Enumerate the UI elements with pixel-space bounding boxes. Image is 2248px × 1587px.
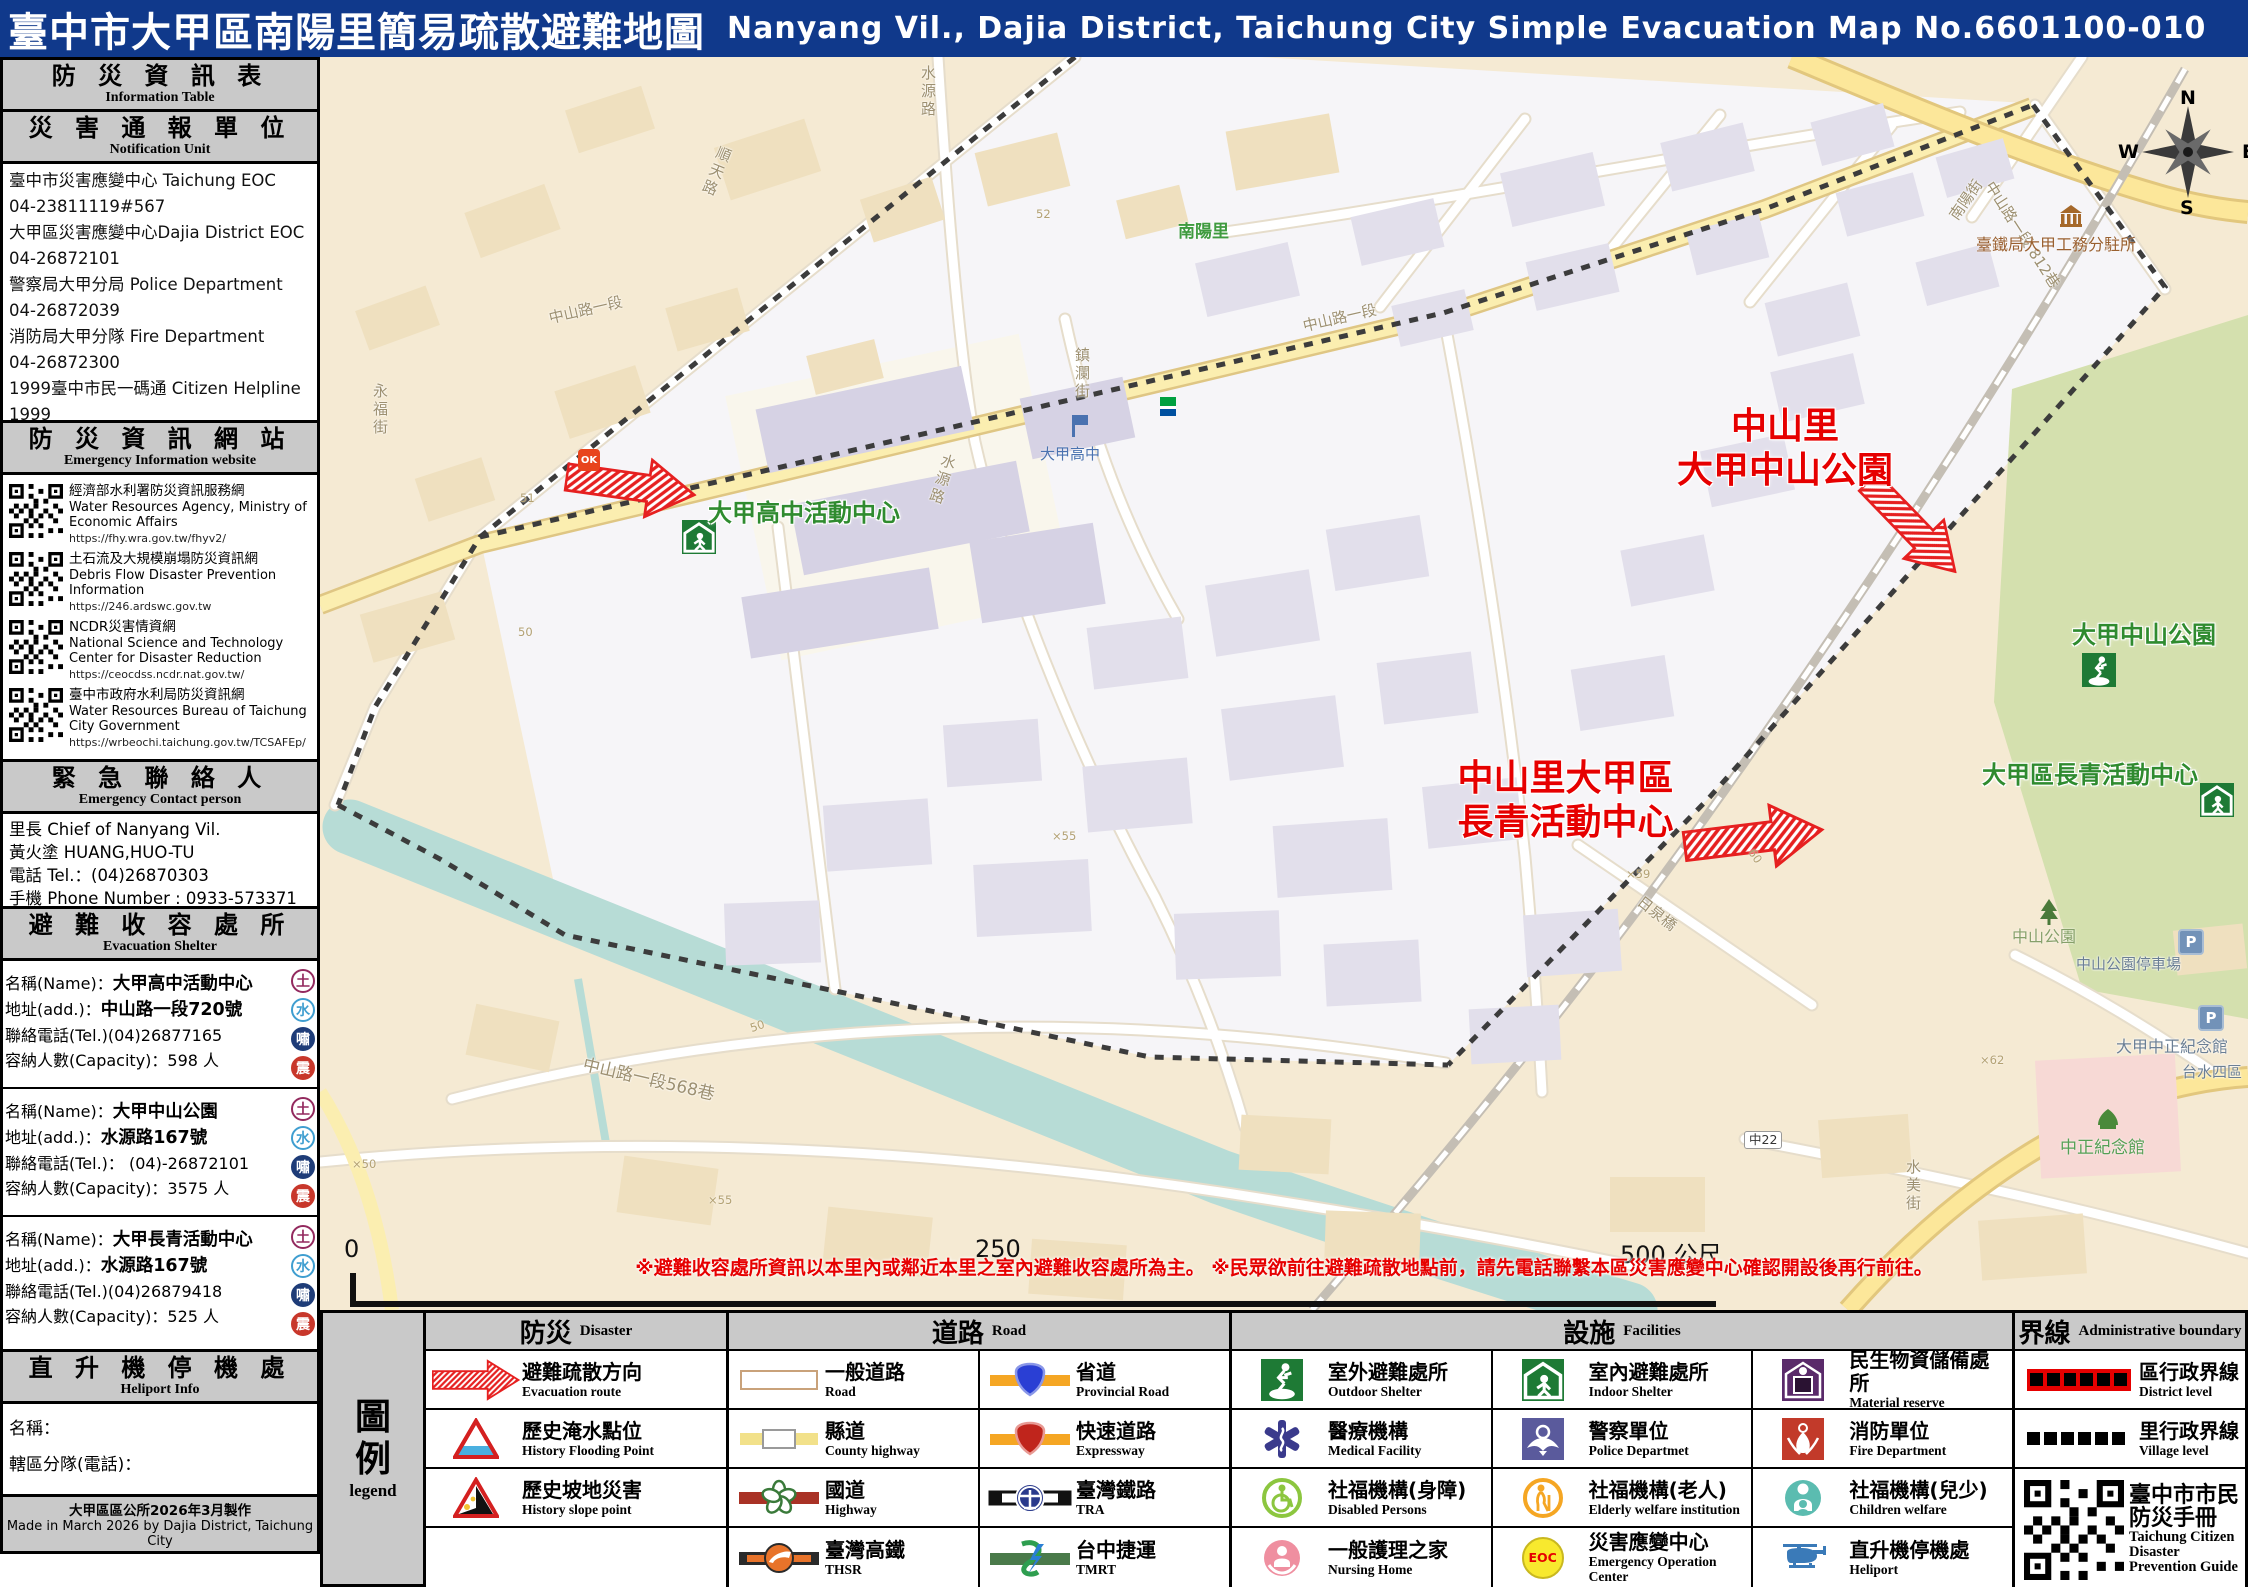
website-item: 經濟部水利署防災資訊服務網 Water Resources Agency, Mi… bbox=[9, 484, 311, 546]
material-reserve-icon bbox=[1757, 1359, 1849, 1401]
village-boundary-symbol bbox=[2019, 1431, 2139, 1447]
notify-phone: 04-26872300 bbox=[9, 350, 311, 376]
road-label: 鎮瀾街 bbox=[1072, 347, 1093, 401]
legend-item: 國道Highway bbox=[729, 1469, 978, 1528]
familymart-icon bbox=[1160, 397, 1176, 416]
compass-e: E bbox=[2242, 141, 2248, 163]
school-label: 大甲高中 bbox=[1040, 443, 1100, 464]
village-name-label: 南陽里 bbox=[1178, 217, 1229, 242]
legend-header-zh: 道路 bbox=[932, 1313, 984, 1350]
fire-department-icon bbox=[1757, 1418, 1849, 1460]
qr-code-icon bbox=[9, 552, 63, 606]
national-highway-symbol bbox=[733, 1476, 825, 1520]
heliport-icon bbox=[1757, 1540, 1849, 1576]
tra-symbol bbox=[984, 1476, 1076, 1520]
legend-header-en: Facilities bbox=[1623, 1323, 1680, 1340]
notify-name: 消防局大甲分隊 Fire Department bbox=[9, 324, 311, 350]
shelter-addr: 地址(add.)：水源路167號 bbox=[5, 1125, 313, 1151]
website-zh: 臺中市政府水利局防災資訊網 bbox=[69, 687, 245, 703]
children-welfare-icon bbox=[1757, 1477, 1849, 1519]
poi-label: 大甲中正紀念館 bbox=[2116, 1033, 2228, 1057]
road-label: 水美街 bbox=[1903, 1159, 1924, 1213]
expressway-symbol bbox=[984, 1417, 1076, 1461]
landslide-badge-icon: 土 bbox=[291, 969, 315, 993]
notify-phone: 04-23811119#567 bbox=[9, 194, 311, 220]
park-tree-icon bbox=[2040, 899, 2058, 925]
government-building-icon bbox=[2060, 205, 2082, 227]
legend-item: 省道Provincial Road bbox=[980, 1351, 1229, 1410]
website-en: Water Resources Agency, Ministry of Econ… bbox=[69, 500, 307, 531]
emergency-contact-title: 緊 急 聯 絡 人 bbox=[3, 764, 317, 792]
police-icon bbox=[1497, 1418, 1589, 1460]
legend-group-facility: 設施 Facilities 室外避難處所Outdoor Shelter bbox=[1232, 1313, 2015, 1584]
evacuation-shelter-title: 避 難 收 容 處 所 bbox=[3, 911, 317, 939]
map-overlay-layer bbox=[320, 57, 2248, 1310]
indoor-shelter-icon bbox=[1497, 1359, 1589, 1401]
page-title: 臺中市大甲區南陽里簡易疏散避難地圖 bbox=[8, 0, 705, 57]
tmrt-symbol bbox=[984, 1536, 1076, 1580]
medical-facility-icon bbox=[1236, 1418, 1328, 1460]
road-label: 永福街 bbox=[370, 383, 391, 437]
legend-header-zh: 界線 bbox=[2019, 1313, 2071, 1350]
landslide-badge-icon: 土 bbox=[291, 1225, 315, 1249]
emergency-website-title: 防 災 資 訊 網 站 bbox=[3, 425, 317, 453]
notification-unit-subtitle: Notification Unit bbox=[3, 142, 317, 158]
shelter-label: 大甲區長青活動中心 bbox=[1982, 755, 2198, 790]
legend-header-zh: 防災 bbox=[520, 1313, 572, 1350]
legend-group-disaster: 防災 Disaster 避難疏散方向Evacuation route bbox=[426, 1313, 729, 1584]
elevation-label: 51 bbox=[520, 491, 535, 505]
notify-phone: 04-26872039 bbox=[9, 298, 311, 324]
road-label: 水源路 bbox=[918, 65, 939, 119]
eoc-icon: EOC bbox=[1497, 1537, 1589, 1579]
nursing-home-icon bbox=[1236, 1537, 1328, 1579]
thsr-symbol bbox=[733, 1536, 825, 1580]
website-item: 土石流及大規模崩塌防災資訊網 Debris Flow Disaster Prev… bbox=[9, 552, 311, 614]
shelter-entry: 名稱(Name)：大甲長青活動中心 地址(add.)：水源路167號 聯絡電話(… bbox=[3, 1217, 317, 1343]
shelter-addr: 地址(add.)：中山路一段720號 bbox=[5, 997, 313, 1023]
legend-header-en: Road bbox=[992, 1323, 1026, 1340]
sidebar-footer: 大甲區區公所2026年3月製作 Made in March 2026 by Da… bbox=[0, 1494, 320, 1554]
legend-item: 直升機停機處Heliport bbox=[1753, 1528, 2012, 1587]
heliport-subtitle: Heliport Info bbox=[3, 1382, 317, 1398]
contact-line: 黃火塗 HUANG,HUO-TU bbox=[9, 841, 311, 864]
website-url: https://246.ardswc.gov.tw bbox=[69, 600, 211, 613]
spot-height-label: ×59 bbox=[1626, 867, 1642, 881]
notify-name: 1999臺中市民一碼通 Citizen Helpline bbox=[9, 376, 311, 402]
legend-item: 臺灣鐵路TRA bbox=[980, 1469, 1229, 1528]
shelter-name: 名稱(Name)：大甲長青活動中心 bbox=[5, 1227, 313, 1253]
disabled-persons-icon bbox=[1236, 1477, 1328, 1519]
notification-list: 臺中市災害應變中心 Taichung EOC 04-23811119#567 大… bbox=[0, 161, 320, 423]
shelter-capacity: 容納人數(Capacity)：598 人 bbox=[5, 1048, 313, 1073]
earthquake-badge-icon: 震 bbox=[291, 1056, 315, 1080]
poi-label: 中山公園停車場 bbox=[2076, 953, 2181, 974]
shelter-entry: 名稱(Name)：大甲高中活動中心 地址(add.)：中山路一段720號 聯絡電… bbox=[3, 961, 317, 1089]
legend-item: 臺中市市民防災手冊Taichung Citizen Disaster Preve… bbox=[2015, 1469, 2245, 1587]
made-by-zh: 大甲區區公所2026年3月製作 bbox=[3, 1499, 317, 1519]
shelter-label: 大甲中山公園 bbox=[2072, 615, 2216, 650]
legend-group-boundary: 界線 Administrative boundary 區行政界線District… bbox=[2015, 1313, 2245, 1584]
parking-icon: P bbox=[2178, 929, 2204, 955]
shelter-capacity: 容納人數(Capacity)：525 人 bbox=[5, 1304, 313, 1329]
shelter-tel: 聯絡電話(Tel.)(04)26879418 bbox=[5, 1279, 313, 1304]
parking-icon: P bbox=[2198, 1005, 2224, 1031]
notify-name: 警察局大甲分局 Police Department bbox=[9, 272, 311, 298]
shelter-name: 名稱(Name)：大甲中山公園 bbox=[5, 1099, 313, 1125]
county-road-badge: 中22 bbox=[1744, 1131, 1782, 1149]
heliport-title: 直 升 機 停 機 處 bbox=[3, 1354, 317, 1382]
hazard-badges: 土 水 嘯 震 bbox=[291, 1097, 315, 1208]
legend-item: 室外避難處所Outdoor Shelter bbox=[1232, 1351, 1491, 1410]
contact-line: 電話 Tel.：(04)26870303 bbox=[9, 864, 311, 887]
website-url: https://ceocdss.ncdr.nat.gov.tw/ bbox=[69, 668, 244, 681]
slope-hazard-icon bbox=[430, 1477, 522, 1519]
legend-side-label: 圖例 legend bbox=[323, 1313, 426, 1584]
school-flag-icon bbox=[1072, 415, 1088, 437]
legend-header-en: Disaster bbox=[580, 1323, 633, 1340]
notification-unit-title: 災 害 通 報 單 位 bbox=[3, 114, 317, 142]
legend-item: 民生物資儲備處所Material reserve bbox=[1753, 1351, 2012, 1410]
info-sidebar: 防 災 資 訊 表 Information Table 災 害 通 報 單 位 … bbox=[0, 57, 320, 1587]
provincial-road-symbol bbox=[984, 1358, 1076, 1402]
legend-item: 室內避難處所Indoor Shelter bbox=[1493, 1351, 1752, 1410]
compass-rose-icon bbox=[2142, 106, 2234, 198]
spot-height-label: ×55 bbox=[708, 1193, 724, 1207]
shelter-tel: 聯絡電話(Tel.)(04)26877165 bbox=[5, 1023, 313, 1048]
shelter-label: 大甲高中活動中心 bbox=[708, 493, 900, 528]
hazard-badges: 土 水 嘯 震 bbox=[291, 1225, 315, 1336]
tsunami-badge-icon: 嘯 bbox=[291, 1155, 315, 1179]
heliport-name-line: 名稱： bbox=[9, 1414, 311, 1444]
legend-item: 社福機構(兒少)Children welfare bbox=[1753, 1469, 2012, 1528]
qr-code-icon bbox=[9, 620, 63, 674]
legend-item: 縣道County highway bbox=[729, 1410, 978, 1469]
notify-name: 臺中市災害應變中心 Taichung EOC bbox=[9, 168, 311, 194]
legend-item: 社福機構(身障)Disabled Persons bbox=[1232, 1469, 1491, 1528]
emergency-contact-header: 緊 急 聯 絡 人 Emergency Contact person bbox=[0, 759, 320, 814]
elevation-label: 50 bbox=[518, 625, 533, 639]
legend-zh: 圖例 bbox=[353, 1397, 393, 1481]
outdoor-shelter-icon bbox=[1236, 1359, 1328, 1401]
spot-height-label: ×50 bbox=[352, 1157, 368, 1171]
flood-badge-icon: 水 bbox=[291, 1126, 315, 1150]
legend-header-boundary: 界線 Administrative boundary bbox=[2015, 1313, 2245, 1351]
notify-phone: 04-26872101 bbox=[9, 246, 311, 272]
compass-w: W bbox=[2118, 141, 2139, 163]
flood-badge-icon: 水 bbox=[291, 998, 315, 1022]
evacuation-route-icon bbox=[430, 1359, 522, 1401]
road-symbol bbox=[733, 1370, 825, 1390]
legend-item: 歷史淹水點位History Flooding Point bbox=[426, 1410, 726, 1469]
website-zh: 土石流及大規模崩塌防災資訊網 bbox=[69, 551, 258, 567]
website-url: https://fhy.wra.gov.tw/fhyv2/ bbox=[69, 532, 226, 545]
evacuation-destination-label: 中山里大甲中山公園 bbox=[1620, 405, 1950, 493]
website-list: 經濟部水利署防災資訊服務網 Water Resources Agency, Mi… bbox=[0, 472, 320, 762]
legend-item: 醫療機構Medical Facility bbox=[1232, 1410, 1491, 1469]
legend-item: 一般道路Road bbox=[729, 1351, 978, 1410]
evacuation-note: ※避難收容處所資訊以本里內或鄰近本里之室內避難收容處所為主。 ※民眾欲前往避難疏… bbox=[320, 1253, 2248, 1280]
legend-item: 歷史坡地災害History slope point bbox=[426, 1469, 726, 1528]
website-en: Debris Flow Disaster Prevention Informat… bbox=[69, 568, 276, 599]
evacuation-shelter-subtitle: Evacuation Shelter bbox=[3, 939, 317, 955]
poi-label: 台水四區 bbox=[2182, 1061, 2242, 1082]
legend-item: 快速道路Expressway bbox=[980, 1410, 1229, 1469]
website-en: National Science and Technology Center f… bbox=[69, 636, 283, 667]
notify-name: 大甲區災害應變中心Dajia District EOC bbox=[9, 220, 311, 246]
hazard-badges: 土 水 嘯 震 bbox=[291, 969, 315, 1080]
compass-s: S bbox=[2180, 197, 2194, 219]
earthquake-badge-icon: 震 bbox=[291, 1184, 315, 1208]
title-bar: 臺中市大甲區南陽里簡易疏散避難地圖 Nanyang Vil., Dajia Di… bbox=[0, 0, 2248, 57]
tsunami-badge-icon: 嘯 bbox=[291, 1027, 315, 1051]
emergency-website-header: 防 災 資 訊 網 站 Emergency Information websit… bbox=[0, 420, 320, 475]
indoor-shelter-icon bbox=[2200, 783, 2234, 817]
shelter-tel: 聯絡電話(Tel.)： (04)-26872101 bbox=[5, 1151, 313, 1176]
legend-header-road: 道路 Road bbox=[729, 1313, 1229, 1351]
earthquake-badge-icon: 震 bbox=[291, 1312, 315, 1336]
legend-header-zh: 設施 bbox=[1563, 1313, 1615, 1350]
legend-item: 區行政界線District level bbox=[2015, 1351, 2245, 1410]
qr-code-icon bbox=[9, 484, 63, 538]
info-table-title: 防 災 資 訊 表 bbox=[3, 62, 317, 90]
evacuation-map-canvas: 順天路 水源路 永福街 中山路一段 中山路一段 中山路一段568巷 中山路一段 … bbox=[320, 57, 2248, 1310]
legend-header-disaster: 防災 Disaster bbox=[426, 1313, 726, 1351]
poi-label: 臺鐵局大甲工務分駐所 bbox=[1976, 231, 2136, 255]
county-highway-symbol bbox=[733, 1429, 825, 1449]
shelter-addr: 地址(add.)：水源路167號 bbox=[5, 1253, 313, 1279]
legend-group-road: 道路 Road 一般道路Road 縣道County highway bbox=[729, 1313, 1232, 1584]
info-table-subtitle: Information Table bbox=[3, 90, 317, 106]
legend-item: 一般護理之家Nursing Home bbox=[1232, 1528, 1491, 1587]
emergency-website-subtitle: Emergency Information website bbox=[3, 453, 317, 469]
village-boundary bbox=[338, 57, 2165, 1065]
compass-n: N bbox=[2180, 87, 2196, 109]
contact-info: 里長 Chief of Nanyang Vil. 黃火塗 HUANG,HUO-T… bbox=[0, 811, 320, 909]
info-table-header: 防 災 資 訊 表 Information Table bbox=[0, 57, 320, 112]
shelter-list: 名稱(Name)：大甲高中活動中心 地址(add.)：中山路一段720號 聯絡電… bbox=[0, 958, 320, 1352]
spot-height-label: ×62 bbox=[1980, 1053, 1996, 1067]
legend-item: 里行政界線Village level bbox=[2015, 1410, 2245, 1469]
legend-header-en: Administrative boundary bbox=[2079, 1323, 2242, 1340]
legend-item: 臺灣高鐵THSR bbox=[729, 1528, 978, 1587]
flood-point-icon bbox=[430, 1418, 522, 1460]
legend-item: 警察單位Police Departmet bbox=[1493, 1410, 1752, 1469]
legend-en: legend bbox=[349, 1481, 396, 1501]
evacuation-destination-label: 中山里大甲區長青活動中心 bbox=[1398, 757, 1733, 845]
heliport-unit-line: 轄區分隊(電話)： bbox=[9, 1450, 311, 1480]
elderly-welfare-icon bbox=[1497, 1477, 1589, 1519]
website-zh: NCDR災害情資網 bbox=[69, 619, 176, 635]
website-zh: 經濟部水利署防災資訊服務網 bbox=[69, 483, 245, 499]
shelter-capacity: 容納人數(Capacity)：3575 人 bbox=[5, 1176, 313, 1201]
evacuation-shelter-header: 避 難 收 容 處 所 Evacuation Shelter bbox=[0, 906, 320, 961]
page-title-en: Nanyang Vil., Dajia District, Taichung C… bbox=[727, 11, 2206, 46]
flood-badge-icon: 水 bbox=[291, 1254, 315, 1278]
memorial-dome-icon bbox=[2098, 1109, 2118, 1129]
legend-item: EOC 災害應變中心Emergency Operation Center bbox=[1493, 1528, 1752, 1587]
legend-item: 社福機構(老人)Elderly welfare institution bbox=[1493, 1469, 1752, 1528]
ok-mart-icon: OK bbox=[578, 449, 600, 471]
evacuation-map-page: 臺中市大甲區南陽里簡易疏散避難地圖 Nanyang Vil., Dajia Di… bbox=[0, 0, 2248, 1587]
legend-header-facility: 設施 Facilities bbox=[1232, 1313, 2012, 1351]
qr-code-icon bbox=[9, 688, 63, 742]
shelter-entry: 名稱(Name)：大甲中山公園 地址(add.)：水源路167號 聯絡電話(Te… bbox=[3, 1089, 317, 1217]
elevation-label: 52 bbox=[1036, 207, 1051, 221]
made-by-en: Made in March 2026 by Dajia District, Ta… bbox=[3, 1519, 317, 1549]
heliport-info: 名稱： 轄區分隊(電話)： bbox=[0, 1401, 320, 1497]
contact-line: 里長 Chief of Nanyang Vil. bbox=[9, 818, 311, 841]
legend-item: 避難疏散方向Evacuation route bbox=[426, 1351, 726, 1410]
spot-height-label: ×55 bbox=[1052, 829, 1068, 843]
qr-code-icon bbox=[2019, 1480, 2129, 1580]
website-url: https://wrbeochi.taichung.gov.tw/TCSAFEp… bbox=[69, 736, 306, 749]
legend-table: 圖例 legend 防災 Disaster 避難疏散方向Evacuation r… bbox=[320, 1310, 2248, 1587]
emergency-contact-subtitle: Emergency Contact person bbox=[3, 792, 317, 808]
shelter-name: 名稱(Name)：大甲高中活動中心 bbox=[5, 971, 313, 997]
notification-unit-header: 災 害 通 報 單 位 Notification Unit bbox=[0, 109, 320, 164]
website-item: NCDR災害情資網 National Science and Technolog… bbox=[9, 620, 311, 682]
district-boundary-symbol bbox=[2019, 1369, 2139, 1391]
landslide-badge-icon: 土 bbox=[291, 1097, 315, 1121]
legend-item: 消防單位Fire Department bbox=[1753, 1410, 2012, 1469]
park-label: 中山公園 bbox=[2012, 923, 2076, 947]
heliport-header: 直 升 機 停 機 處 Heliport Info bbox=[0, 1349, 320, 1404]
website-item: 臺中市政府水利局防災資訊網 Water Resources Bureau of … bbox=[9, 688, 311, 750]
website-en: Water Resources Bureau of Taichung City … bbox=[69, 704, 307, 735]
legend-item-empty bbox=[426, 1528, 726, 1587]
tsunami-badge-icon: 嘯 bbox=[291, 1283, 315, 1307]
poi-label: 中正紀念館 bbox=[2060, 1133, 2145, 1158]
outdoor-shelter-icon bbox=[2082, 653, 2116, 687]
legend-item: 台中捷運TMRT bbox=[980, 1528, 1229, 1587]
